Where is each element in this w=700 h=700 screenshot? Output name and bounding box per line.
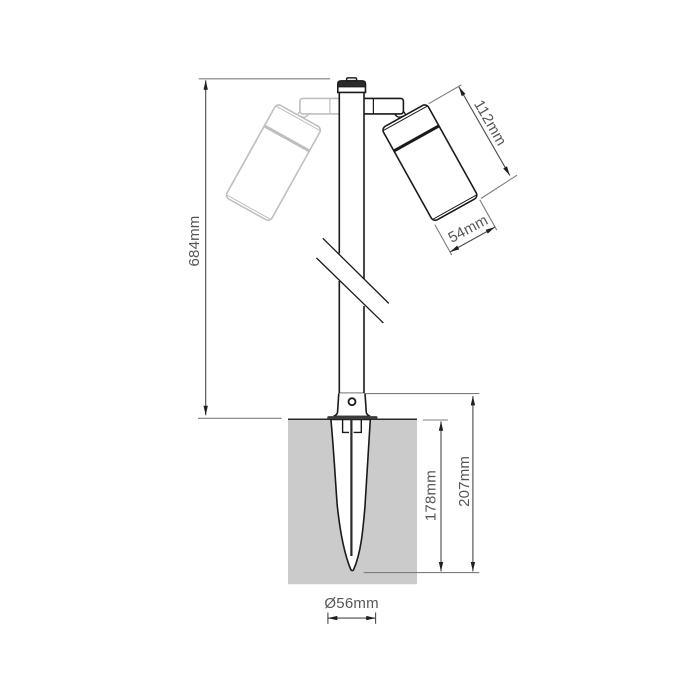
svg-text:Ø56mm: Ø56mm (324, 595, 378, 612)
svg-text:207mm: 207mm (456, 456, 473, 507)
svg-text:684mm: 684mm (186, 215, 203, 266)
svg-text:178mm: 178mm (423, 470, 440, 521)
